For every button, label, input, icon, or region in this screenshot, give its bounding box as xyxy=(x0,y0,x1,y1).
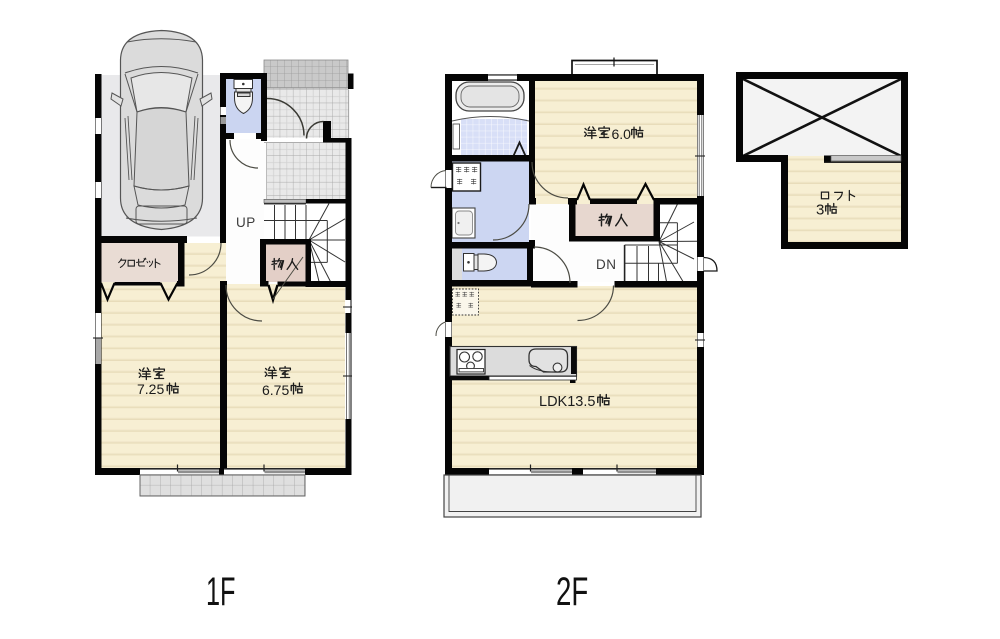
svg-text:3: 3 xyxy=(816,202,824,219)
svg-text:UP: UP xyxy=(236,215,256,230)
svg-text:LDK13.5: LDK13.5 xyxy=(539,394,595,410)
svg-text:6.0: 6.0 xyxy=(612,126,632,142)
svg-text:DN: DN xyxy=(596,257,617,272)
svg-text:1F: 1F xyxy=(206,570,236,614)
svg-text:6.75: 6.75 xyxy=(262,382,289,398)
svg-text:2F: 2F xyxy=(556,570,588,614)
svg-text:7.25: 7.25 xyxy=(137,381,164,397)
